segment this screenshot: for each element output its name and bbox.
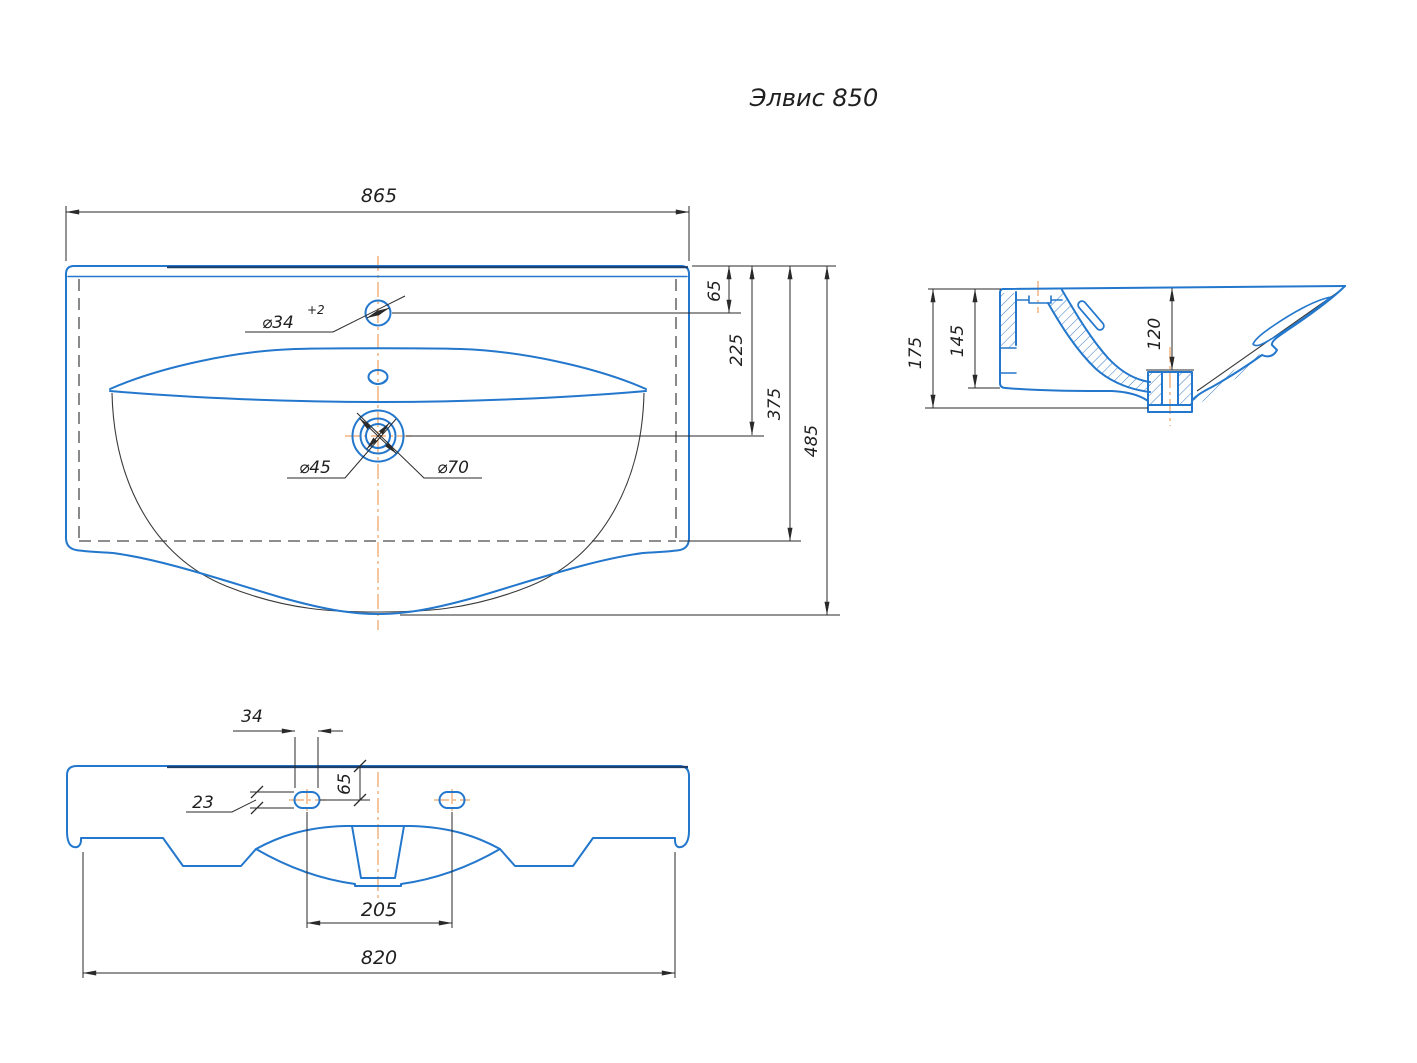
section-hatch-wall	[1000, 293, 1016, 348]
drawing-title: Элвис 850	[749, 84, 878, 112]
dim-bowl-depth: 120	[1145, 318, 1165, 350]
dim-body-depth: 375	[765, 388, 785, 420]
label-drain-outer-dia: ⌀70	[437, 458, 469, 478]
canvas-background	[0, 0, 1417, 1063]
label-drain-inner-dia: ⌀45	[299, 458, 331, 478]
dim-slot-height: 23	[192, 793, 214, 813]
technical-drawing: Элвис 850 865	[0, 0, 1417, 1063]
dim-drain-offset: 225	[727, 334, 747, 366]
dim-back-wall-height: 145	[948, 325, 968, 357]
dim-bottom-width: 820	[361, 947, 397, 969]
dim-slot-width: 34	[241, 707, 263, 727]
label-faucet-dia: ⌀34	[262, 313, 294, 333]
drawing-sheet: Элвис 850 865	[0, 0, 1417, 1063]
dim-slot-top-offset: 65	[335, 773, 355, 795]
label-faucet-tolerance: +2	[307, 303, 325, 317]
dim-faucet-offset: 65	[705, 280, 725, 302]
dim-slot-spacing: 205	[361, 899, 397, 921]
dim-overall-width: 865	[361, 185, 397, 207]
section-hatch-drain-right	[1178, 373, 1192, 405]
dim-overall-height: 175	[906, 337, 926, 369]
section-hatch-drain-left	[1148, 373, 1162, 405]
dim-overall-depth: 485	[802, 425, 822, 457]
